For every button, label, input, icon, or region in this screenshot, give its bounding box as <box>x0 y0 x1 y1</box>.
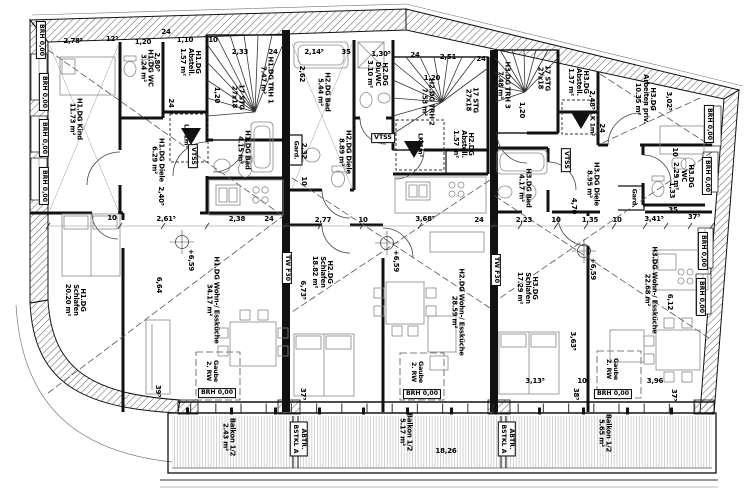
room-h1dg-wohn: H1.DG Wohn-/ Essküche34.17 m² <box>205 256 220 343</box>
room-balkon-2: Balkon 1/25.17 m² <box>398 413 413 451</box>
room-h3dg-wohn: H3.DG Wohn-/ Essküche22.68 m² <box>643 246 658 333</box>
dim-label-38: 1,35 <box>582 217 598 225</box>
room-balkon-1: Balkon 1/22.43 m² <box>221 418 236 456</box>
lk-h3: LK 1m² <box>588 112 595 136</box>
dim-label-44: 6,64 <box>154 277 162 293</box>
dim-label-9: 35 <box>341 49 350 57</box>
room-balkon-3: Balkon 1/25.65 m² <box>597 414 612 452</box>
dim-label-56: 39⁵ <box>153 385 161 397</box>
dim-label-26: 10 <box>670 147 678 156</box>
dim-label-27: 1,33 <box>667 182 675 198</box>
dim-label-37: 10 <box>551 217 560 225</box>
dim-label-0: 2,78⁵ <box>63 38 82 46</box>
dim-label-11: 24 <box>410 52 419 60</box>
brh-right-3: BRH 0,00 <box>698 232 708 270</box>
vtss-h3: VTSS <box>561 148 571 172</box>
room-h2dg-trh2: H2.DG TRH 27.53 m² <box>420 78 435 125</box>
stair-steps-trh2: 17 STG27x18 <box>464 87 479 113</box>
dim-label-41: 35 <box>668 207 677 215</box>
brh-bottom-3: BRH 0,00 <box>594 389 632 399</box>
brh-left-4: BRH 0,00 <box>39 167 49 205</box>
brh-bottom-2: BRH 0,00 <box>403 389 441 399</box>
dim-label-58: 18,26 <box>435 448 456 456</box>
dim-label-39: 10 <box>612 217 621 225</box>
tw-f30-left: TW F30 <box>282 252 292 284</box>
dim-label-7: 24 <box>268 49 277 57</box>
vtss-h2: VTSS <box>371 133 395 143</box>
room-h2dg-schlafen: H2.DGSchlafen18.82 m² <box>311 256 333 288</box>
dim-label-50: 3,63⁵ <box>568 331 576 350</box>
dim-label-21: 10 <box>299 176 307 185</box>
room-h1dg-kind: H1.DG Kind11.73 m² <box>68 98 83 140</box>
gaube-h1: Gaube2. RW <box>205 360 219 382</box>
dim-label-30: 2,38 <box>229 216 245 224</box>
dim-label-24: 24 <box>597 123 605 132</box>
dim-label-22: 1,20 <box>517 102 525 118</box>
dim-label-2: 1,20 <box>135 39 151 47</box>
dim-label-36: 2,23 <box>516 217 532 225</box>
brh-left-2: BRH 0,00 <box>39 73 49 111</box>
lk-h2: LK 1m² <box>416 133 423 157</box>
dim-label-45: 6,73⁵ <box>298 280 306 299</box>
brh-bottom-1: BRH 0,00 <box>198 388 236 398</box>
room-h3dg-diele: H3.DG Diele8.95 m² <box>585 162 600 206</box>
dim-label-54: 38⁵ <box>571 388 579 400</box>
dim-label-53: 3,96 <box>647 378 663 386</box>
dim-label-16: 1,20 <box>212 87 220 103</box>
dim-label-35: 24 <box>474 217 483 225</box>
brh-right-1: BRH 0,00 <box>704 105 714 143</box>
room-h1dg-diele: H1.DG Diele6.29 m² <box>150 138 165 182</box>
lk-h1: LK 1m² <box>182 124 189 148</box>
dim-label-49: +6,59 <box>588 258 596 280</box>
dim-label-14: 1,20 <box>424 75 440 83</box>
stair-steps-trh1: 17 STG27x18 <box>230 84 245 110</box>
abtr-bstkl-2: ABTR.BSTKL A <box>498 421 516 456</box>
dim-label-1: 12⁵ <box>106 36 118 44</box>
brh-right-4: BRH 0,00 <box>696 278 706 316</box>
dim-label-57: 37⁵ <box>298 388 306 400</box>
room-h2dg-duwc: H2.DGDu/WC3.10 m² <box>366 60 388 88</box>
room-h3dg-arbeiten: H3.DGArbeiten priv.10.35 m² <box>634 74 656 124</box>
dim-label-10: 1,30⁵ <box>371 51 390 59</box>
dim-label-15: 2,80⁵ <box>152 52 160 71</box>
dim-label-34: 3,68⁵ <box>415 216 434 224</box>
dim-label-4: 1,10 <box>177 37 193 45</box>
dim-label-29: 2,61⁵ <box>156 216 175 224</box>
stair-steps-trh3: 17 STG27x18 <box>536 65 551 91</box>
dim-label-25: 3,02⁵ <box>664 91 672 110</box>
room-h2dg-wohn: H2.DG Wohn-/ Essküche28.59 m² <box>450 268 465 355</box>
dim-label-28: 10 <box>107 215 116 223</box>
tw-f30-right: TW F30 <box>491 254 501 286</box>
dim-label-23: 2,48⁵ <box>587 90 595 109</box>
room-h3dg-trh3: H3.DG TRH 37.48 m² <box>496 61 511 108</box>
dim-label-31: 24 <box>264 216 273 224</box>
gaube-h2: Gaube2. RW <box>410 361 424 383</box>
dim-label-13: 24 <box>476 56 485 64</box>
room-h2dg-diele: H2.DG Diele8.89 m² <box>337 130 352 174</box>
label-layer: H1.DG Kind11.73 m²H1.DG WC3.24 m²H1.DGAb… <box>0 0 750 500</box>
room-h2dg-bad: H2.DG Bad5.44 m² <box>316 72 331 111</box>
dim-label-33: 10 <box>358 217 367 225</box>
brh-left-3: BRH 0,00 <box>39 119 49 157</box>
dim-label-43: 4,70 <box>569 198 577 214</box>
brh-left-1: BRH 0,00 <box>36 21 46 59</box>
dim-label-52: 10 <box>577 378 586 386</box>
room-h3dg-abstell: H3.DGAbstell.1.37 m² <box>567 68 589 96</box>
abtr-bstkl-1: ABTR.BSTKL A <box>290 421 308 456</box>
dim-label-47: +6,59 <box>186 249 194 271</box>
dim-label-8: 2,14⁵ <box>304 49 323 57</box>
dim-label-6: 2,33 <box>232 49 248 57</box>
room-h3dg-schlafen: H3.DGSchlafen17.29 m² <box>516 272 538 304</box>
dim-label-20: 2,32 <box>299 143 307 159</box>
dim-label-32: 2,77 <box>315 217 331 225</box>
dim-label-3: 24 <box>161 29 170 37</box>
room-h1dg-trh1: H1.DG TRH 17.47 m² <box>259 56 274 103</box>
dim-label-48: +6,59 <box>391 250 399 272</box>
dim-label-55: 37⁵ <box>669 389 677 401</box>
dim-label-40: 3,41⁵ <box>644 216 663 224</box>
dim-label-18: 2,40⁵ <box>156 186 164 205</box>
dim-label-51: 3,13⁵ <box>525 378 544 386</box>
dim-label-17: 24 <box>166 98 174 107</box>
room-h3dg-bad: H3.DG Bad4.17 m² <box>517 168 532 207</box>
dim-label-46: 6,12 <box>665 294 673 310</box>
room-h2dg-abstell: H2.DGAbstell.1.57 m² <box>452 130 474 158</box>
dim-label-12: 2,51 <box>440 54 456 62</box>
dim-label-19: 2,62 <box>297 66 305 82</box>
floor-plan-page: H1.DG Kind11.73 m²H1.DG WC3.24 m²H1.DGAb… <box>0 0 750 500</box>
room-h1dg-schlafen: H1.DGSchlafen20.20 m² <box>64 284 86 316</box>
dim-label-42: 37⁵ <box>688 214 700 222</box>
room-h1dg-bad: H1.DG Bad4.15 m² <box>236 130 251 169</box>
gaube-h3: Gaube2. RW <box>605 358 619 380</box>
room-h1dg-abstell: H1.DGAbstell.1.57 m² <box>179 48 201 76</box>
gard-h3: Gard. <box>630 189 637 208</box>
brh-right-2: BRH 0,00 <box>702 157 712 195</box>
dim-label-5: 10 <box>208 37 217 45</box>
